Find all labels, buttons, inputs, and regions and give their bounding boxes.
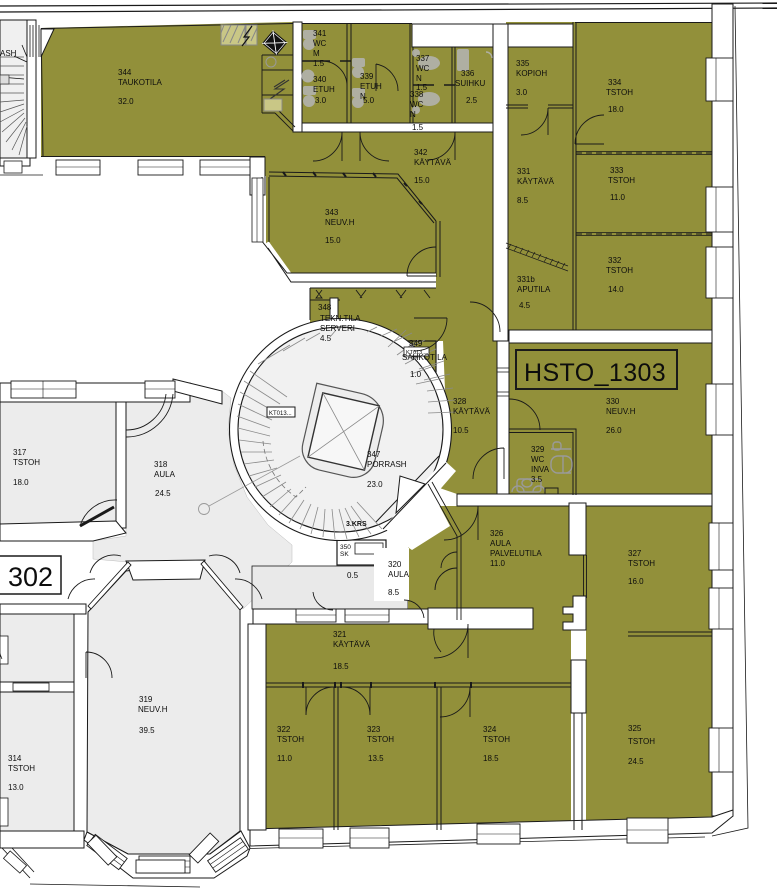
- svg-text:1.5: 1.5: [313, 59, 325, 68]
- svg-text:TSTOH: TSTOH: [367, 735, 394, 744]
- svg-text:N: N: [410, 110, 416, 119]
- svg-text:HSTO_1303: HSTO_1303: [524, 359, 666, 387]
- svg-text:TEKN.TILA: TEKN.TILA: [320, 314, 361, 323]
- svg-text:5.0: 5.0: [363, 96, 375, 105]
- svg-text:16.0: 16.0: [628, 577, 644, 586]
- svg-text:314: 314: [8, 754, 22, 763]
- svg-text:23.0: 23.0: [367, 480, 383, 489]
- svg-text:NEUV.H: NEUV.H: [325, 218, 355, 227]
- svg-text:347: 347: [367, 450, 381, 459]
- svg-text:ETUH: ETUH: [360, 82, 382, 91]
- svg-text:4.5: 4.5: [320, 334, 332, 343]
- svg-text:NEUV.H: NEUV.H: [138, 705, 168, 714]
- svg-text:ASH: ASH: [0, 49, 17, 58]
- svg-text:319: 319: [139, 695, 153, 704]
- svg-text:337: 337: [416, 54, 430, 63]
- svg-text:8.5: 8.5: [388, 588, 400, 597]
- svg-text:PORRASH: PORRASH: [367, 460, 407, 469]
- svg-text:WC: WC: [416, 64, 430, 73]
- svg-text:2.5: 2.5: [466, 96, 478, 105]
- svg-text:SERVERI: SERVERI: [320, 324, 355, 333]
- svg-text:11.0: 11.0: [490, 559, 506, 568]
- svg-text:N: N: [416, 74, 422, 83]
- svg-text:14.0: 14.0: [608, 285, 624, 294]
- svg-text:342: 342: [414, 148, 428, 157]
- svg-text:13.5: 13.5: [368, 754, 384, 763]
- svg-text:APUTILA: APUTILA: [517, 285, 551, 294]
- svg-text:18.0: 18.0: [13, 478, 29, 487]
- svg-text:3.0: 3.0: [516, 88, 528, 97]
- svg-text:AULA: AULA: [388, 570, 410, 579]
- svg-text:AULA: AULA: [490, 539, 512, 548]
- svg-text:330: 330: [606, 397, 620, 406]
- svg-text:339: 339: [360, 72, 374, 81]
- svg-text:18.5: 18.5: [333, 662, 349, 671]
- svg-text:324: 324: [483, 725, 497, 734]
- svg-text:TSTOH: TSTOH: [628, 559, 655, 568]
- svg-text:332: 332: [608, 256, 622, 265]
- svg-text:TSTOH: TSTOH: [608, 176, 635, 185]
- svg-text:344: 344: [118, 68, 132, 77]
- svg-text:321: 321: [333, 630, 347, 639]
- svg-text:11.0: 11.0: [277, 754, 293, 763]
- svg-text:331b: 331b: [517, 275, 535, 284]
- svg-text:KÄYTÄVÄ: KÄYTÄVÄ: [453, 407, 491, 416]
- svg-text:32.0: 32.0: [118, 97, 134, 106]
- svg-text:M: M: [313, 49, 320, 58]
- svg-text:NEUV.H: NEUV.H: [606, 407, 636, 416]
- svg-text:3.5: 3.5: [531, 475, 543, 484]
- svg-text:SUIHKU: SUIHKU: [455, 79, 485, 88]
- svg-text:WC: WC: [410, 100, 424, 109]
- svg-text:TSTOH: TSTOH: [277, 735, 304, 744]
- svg-text:TAUKOTILA: TAUKOTILA: [118, 78, 163, 87]
- svg-text:331: 331: [517, 167, 531, 176]
- svg-text:0.5: 0.5: [347, 571, 359, 580]
- svg-text:18.0: 18.0: [608, 105, 624, 114]
- svg-text:39.5: 39.5: [139, 726, 155, 735]
- svg-text:WC: WC: [313, 39, 327, 48]
- svg-text:350: 350: [340, 544, 351, 551]
- svg-text:323: 323: [367, 725, 381, 734]
- svg-text:15.0: 15.0: [414, 176, 430, 185]
- svg-text:15.0: 15.0: [325, 236, 341, 245]
- svg-text:11.0: 11.0: [610, 193, 626, 202]
- svg-text:4.5: 4.5: [519, 301, 531, 310]
- svg-text:8.5: 8.5: [517, 196, 529, 205]
- svg-text:TSTOH: TSTOH: [628, 737, 655, 746]
- svg-text:10.5: 10.5: [453, 426, 469, 435]
- svg-text:KÄYTÄVÄ: KÄYTÄVÄ: [517, 177, 555, 186]
- svg-text:KT013...: KT013...: [269, 411, 292, 417]
- svg-text:325: 325: [628, 724, 642, 733]
- svg-text:ETUH: ETUH: [313, 85, 335, 94]
- svg-text:PALVELUTILA: PALVELUTILA: [490, 549, 542, 558]
- svg-text:18.5: 18.5: [483, 754, 499, 763]
- svg-text:322: 322: [277, 725, 291, 734]
- svg-text:341: 341: [313, 29, 327, 38]
- svg-text:3.KRS: 3.KRS: [346, 521, 367, 528]
- svg-text:KÄYTÄVÄ: KÄYTÄVÄ: [414, 158, 452, 167]
- svg-text:TSTOH: TSTOH: [8, 764, 35, 773]
- svg-text:TSTOH: TSTOH: [13, 458, 40, 467]
- svg-text:TSTOH: TSTOH: [606, 88, 633, 97]
- svg-text:340: 340: [313, 75, 327, 84]
- svg-text:349: 349: [409, 339, 423, 348]
- svg-text:13.0: 13.0: [8, 783, 24, 792]
- svg-text:SÄHKÖTILA: SÄHKÖTILA: [402, 353, 448, 362]
- svg-text:328: 328: [453, 397, 467, 406]
- svg-text:TSTOH: TSTOH: [606, 266, 633, 275]
- svg-text:302: 302: [8, 562, 53, 592]
- svg-text:334: 334: [608, 78, 622, 87]
- svg-text:KOPIOH: KOPIOH: [516, 69, 547, 78]
- svg-text:INVA: INVA: [531, 465, 550, 474]
- svg-text:318: 318: [154, 460, 168, 469]
- svg-text:1.5: 1.5: [412, 123, 424, 132]
- svg-text:WC: WC: [531, 455, 545, 464]
- svg-text:338: 338: [410, 90, 424, 99]
- svg-text:26.0: 26.0: [606, 426, 622, 435]
- svg-text:335: 335: [516, 59, 530, 68]
- svg-text:SK: SK: [340, 551, 349, 558]
- svg-text:348: 348: [318, 303, 332, 312]
- svg-text:TSTOH: TSTOH: [483, 735, 510, 744]
- svg-text:336: 336: [461, 69, 475, 78]
- svg-text:326: 326: [490, 529, 504, 538]
- svg-text:AULA: AULA: [154, 470, 176, 479]
- svg-text:320: 320: [388, 560, 402, 569]
- svg-text:3.0: 3.0: [315, 96, 327, 105]
- svg-text:317: 317: [13, 448, 27, 457]
- svg-text:24.5: 24.5: [628, 757, 644, 766]
- svg-text:327: 327: [628, 549, 642, 558]
- svg-text:329: 329: [531, 445, 545, 454]
- svg-text:333: 333: [610, 166, 624, 175]
- svg-text:KÄYTÄVÄ: KÄYTÄVÄ: [333, 640, 371, 649]
- svg-text:343: 343: [325, 208, 339, 217]
- svg-text:24.5: 24.5: [155, 489, 171, 498]
- svg-text:1.0: 1.0: [410, 370, 422, 379]
